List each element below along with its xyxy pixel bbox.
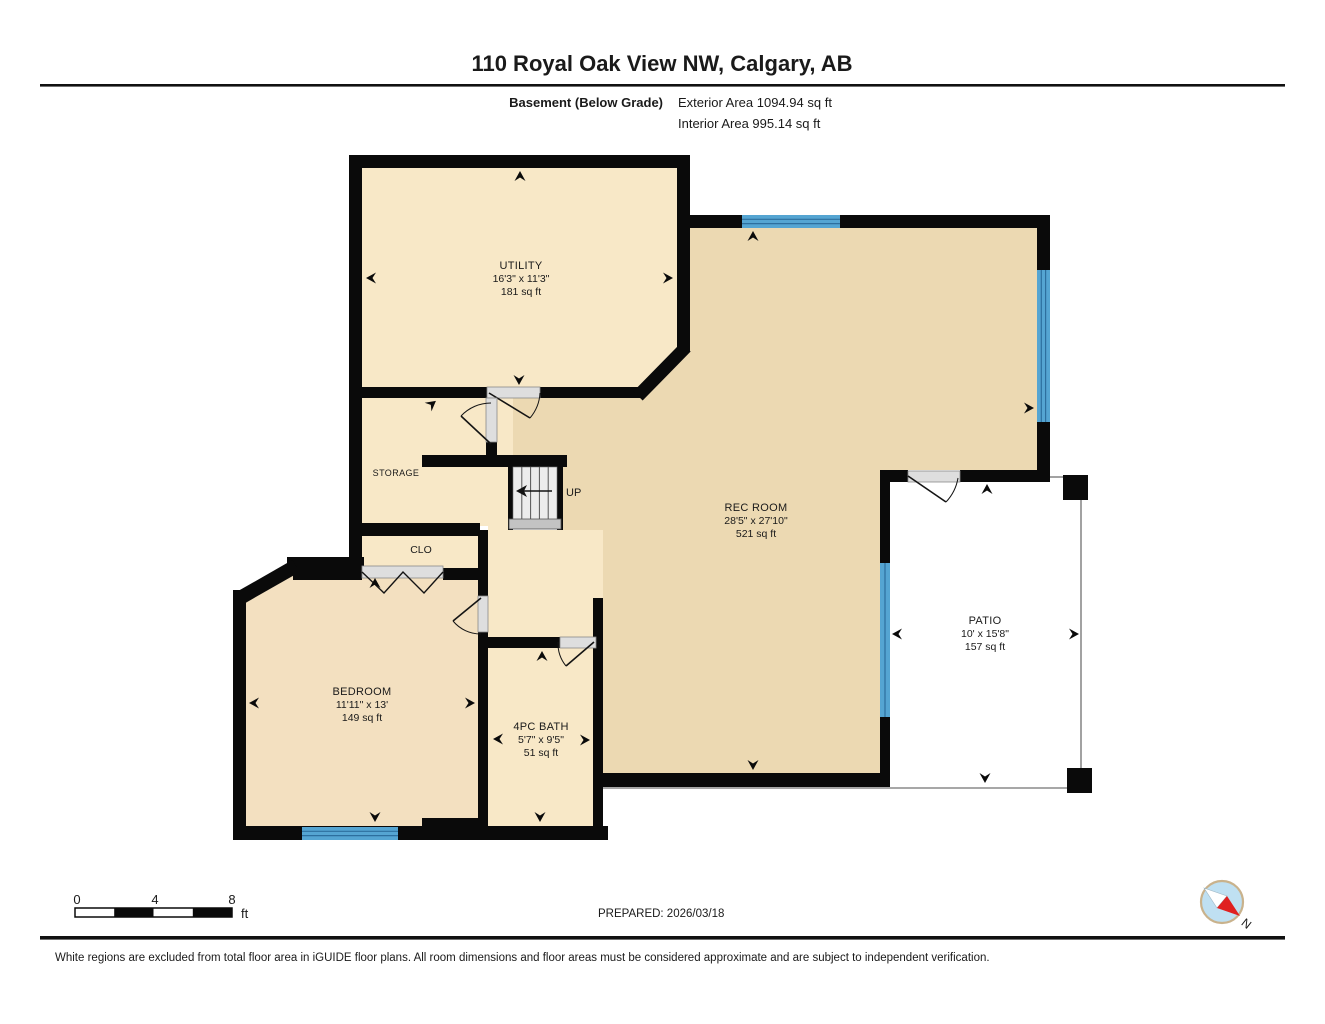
exterior-area: Exterior Area 1094.94 sq ft xyxy=(678,95,832,110)
scale-tick-4: 4 xyxy=(151,892,158,907)
svg-text:149 sq ft: 149 sq ft xyxy=(342,712,382,724)
footer-divider xyxy=(40,936,1285,940)
rec-room-top-window xyxy=(742,215,840,228)
svg-text:PATIO: PATIO xyxy=(969,615,1002,627)
room-fills xyxy=(244,168,1037,826)
staircase xyxy=(509,467,561,529)
scale-unit: ft xyxy=(241,906,249,921)
svg-text:181 sq ft: 181 sq ft xyxy=(501,286,541,298)
floorplan-page: 110 Royal Oak View NW, Calgary, AB Basem… xyxy=(0,0,1325,1024)
stairs-up-label: UP xyxy=(566,487,581,499)
floor-label: Basement (Below Grade) xyxy=(509,95,663,110)
svg-text:28'5" x 27'10": 28'5" x 27'10" xyxy=(724,515,788,527)
floorplan-drawing: 110 Royal Oak View NW, Calgary, AB Basem… xyxy=(0,0,1325,1024)
prepared-date: PREPARED: 2026/03/18 xyxy=(598,908,724,920)
rec-room-right-window xyxy=(1037,270,1050,422)
page-title: 110 Royal Oak View NW, Calgary, AB xyxy=(471,51,852,76)
header-divider xyxy=(40,84,1285,87)
disclaimer-text: White regions are excluded from total fl… xyxy=(55,952,990,964)
svg-text:521 sq ft: 521 sq ft xyxy=(736,528,776,540)
rec-patio-window xyxy=(880,563,890,717)
bedroom-window xyxy=(302,827,398,840)
stair-base xyxy=(509,519,561,529)
compass-north-label: N xyxy=(1239,915,1254,931)
scale-tick-8: 8 xyxy=(228,892,235,907)
svg-text:11'11" x 13': 11'11" x 13' xyxy=(336,699,388,711)
svg-text:51 sq ft: 51 sq ft xyxy=(524,747,559,759)
patio-post-top xyxy=(1063,475,1088,500)
patio-label: PATIO 10' x 15'8" 157 sq ft xyxy=(961,615,1009,653)
patio-door xyxy=(908,471,960,502)
svg-text:157 sq ft: 157 sq ft xyxy=(965,641,1005,653)
patio-post-bottom xyxy=(1067,768,1092,793)
interior-area: Interior Area 995.14 sq ft xyxy=(678,116,821,131)
svg-text:4PC BATH: 4PC BATH xyxy=(513,721,568,733)
svg-text:BEDROOM: BEDROOM xyxy=(333,686,392,698)
svg-text:REC ROOM: REC ROOM xyxy=(725,502,788,514)
storage-label: STORAGE xyxy=(373,468,420,478)
compass-icon: N xyxy=(1201,881,1254,932)
svg-text:5'7" x 9'5": 5'7" x 9'5" xyxy=(518,734,564,746)
svg-text:UTILITY: UTILITY xyxy=(499,260,542,272)
scale-tick-0: 0 xyxy=(73,892,80,907)
svg-text:16'3" x 11'3": 16'3" x 11'3" xyxy=(493,273,550,285)
closet-label: CLO xyxy=(410,544,432,556)
utility-label: UTILITY 16'3" x 11'3" 181 sq ft xyxy=(493,260,550,298)
scale-bar: 0 4 8 ft xyxy=(73,892,248,921)
svg-text:10' x 15'8": 10' x 15'8" xyxy=(961,628,1009,640)
hall-area xyxy=(488,530,603,648)
